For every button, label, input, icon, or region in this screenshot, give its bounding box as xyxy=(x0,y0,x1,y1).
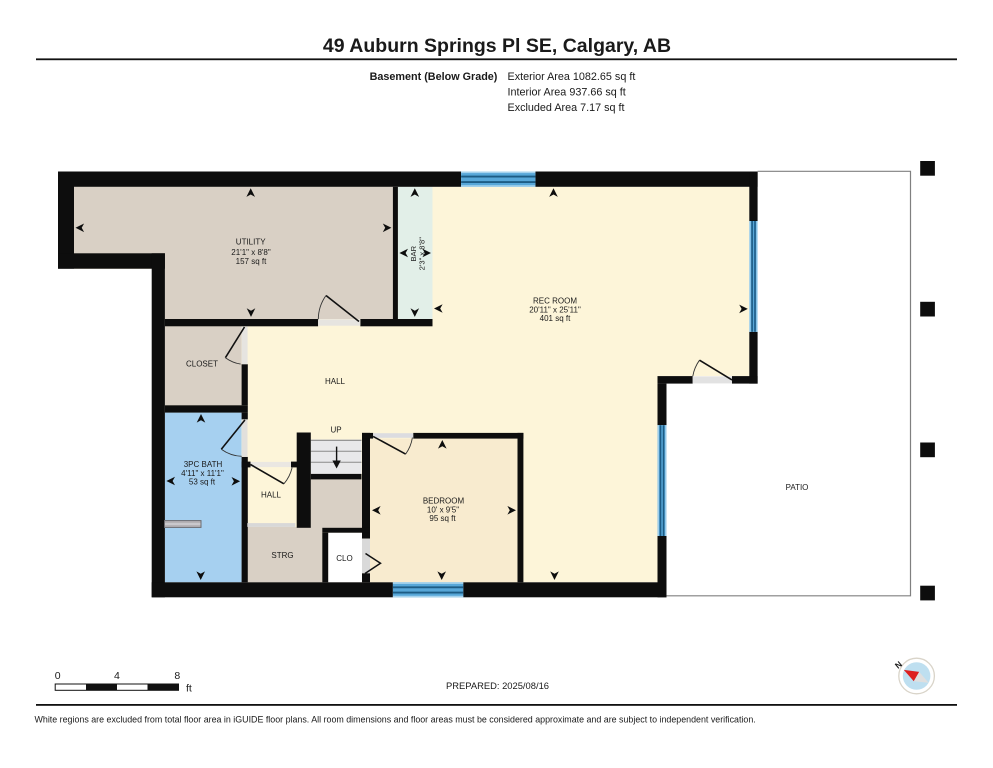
svg-text:HALL: HALL xyxy=(325,377,346,386)
svg-text:Excluded Area 7.17 sq ft: Excluded Area 7.17 sq ft xyxy=(508,102,625,114)
svg-text:Exterior Area 1082.65 sq ft: Exterior Area 1082.65 sq ft xyxy=(508,71,636,83)
svg-text:STRG: STRG xyxy=(271,551,293,560)
svg-text:ft: ft xyxy=(186,683,192,695)
svg-text:UTILITY: UTILITY xyxy=(236,238,266,247)
svg-text:UP: UP xyxy=(330,426,341,435)
svg-text:21'1" x 8'8": 21'1" x 8'8" xyxy=(231,248,271,257)
svg-text:PREPARED: 2025/08/16: PREPARED: 2025/08/16 xyxy=(446,680,549,691)
svg-text:0: 0 xyxy=(55,670,61,682)
svg-text:Interior Area 937.66 sq ft: Interior Area 937.66 sq ft xyxy=(508,86,626,98)
svg-text:PATIO: PATIO xyxy=(786,483,809,492)
svg-text:3PC BATH: 3PC BATH xyxy=(184,460,223,469)
svg-text:Basement (Below Grade): Basement (Below Grade) xyxy=(370,71,498,83)
svg-text:8: 8 xyxy=(174,670,180,682)
svg-text:53 sq ft: 53 sq ft xyxy=(189,478,216,487)
svg-text:BEDROOM: BEDROOM xyxy=(423,497,465,506)
svg-text:157 sq ft: 157 sq ft xyxy=(236,257,267,266)
svg-text:CLOSET: CLOSET xyxy=(186,360,218,369)
svg-text:4: 4 xyxy=(114,670,120,682)
svg-text:HALL: HALL xyxy=(261,491,282,500)
svg-text:401 sq ft: 401 sq ft xyxy=(540,314,571,323)
svg-text:49 Auburn Springs Pl SE, Calga: 49 Auburn Springs Pl SE, Calgary, AB xyxy=(323,35,671,57)
svg-text:White regions are excluded fro: White regions are excluded from total fl… xyxy=(35,715,756,725)
svg-text:95 sq ft: 95 sq ft xyxy=(429,514,456,523)
svg-text:CLO: CLO xyxy=(336,554,352,563)
svg-text:REC ROOM: REC ROOM xyxy=(533,297,577,306)
